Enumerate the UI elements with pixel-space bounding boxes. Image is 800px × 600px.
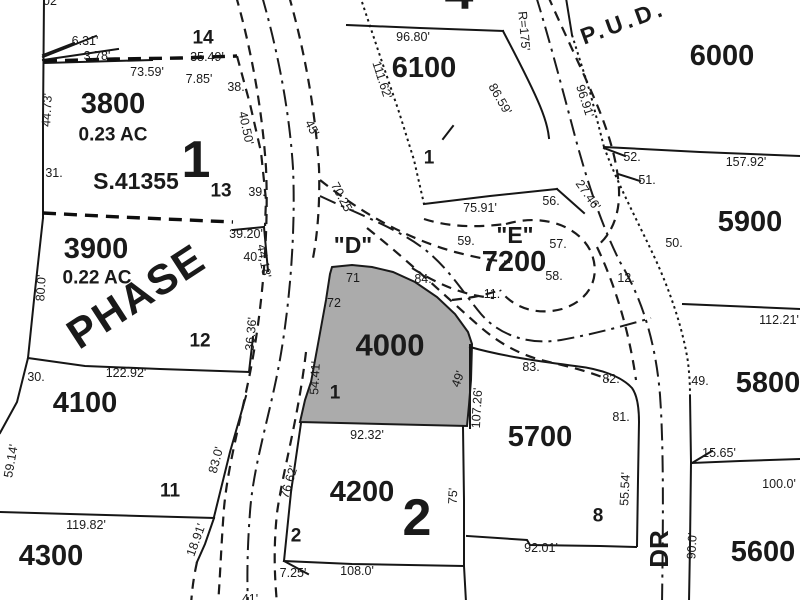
boundary-west-4100 <box>0 358 28 433</box>
parcel-number-5900: 5900 <box>718 206 783 238</box>
dimension-35-49: 35.49' <box>190 50 224 64</box>
dimension-7-85: 7.85' <box>186 72 213 86</box>
parcel-number-4000: 4000 <box>356 328 425 363</box>
corner-number-84: 84. <box>414 272 431 286</box>
dimension-18-91: 18.91' <box>184 522 209 558</box>
text-label-dr: DR <box>644 530 674 568</box>
parcel-number-5800: 5800 <box>736 367 800 399</box>
boundary-east-5700 <box>637 422 639 546</box>
dimension-r-175: R=175' <box>515 11 532 52</box>
dimension-59-14: 59.14' <box>1 443 21 479</box>
dimension-76-62: 76.62' <box>277 464 300 500</box>
parcel-number-5700: 5700 <box>508 421 573 453</box>
dimension-70-25: 70.25' <box>328 180 356 216</box>
road-a-centerline <box>247 0 293 600</box>
block-number-1: 1 <box>182 131 211 189</box>
dimension-73-59: 73.59' <box>130 65 164 79</box>
corner-number-82: 82. <box>602 372 619 386</box>
parcel-number-7200: 7200 <box>482 246 547 278</box>
road-edge-4300 <box>191 562 197 600</box>
parcel-number-5600: 5600 <box>731 536 796 568</box>
lot-number-12: 12 <box>189 331 210 352</box>
leader-51 <box>618 174 640 181</box>
block-number-2: 2 <box>403 489 432 547</box>
corner-number-31: 31. <box>45 166 62 180</box>
dimension-7-25: 7.25' <box>280 566 307 580</box>
corner-number-12: 12. <box>617 271 634 285</box>
lot-number-2: 2 <box>291 526 302 547</box>
boundary-east-4200 <box>463 427 466 600</box>
corner-number-71: 71 <box>346 271 360 285</box>
parcel-number-6100: 6100 <box>392 52 457 84</box>
dimension-107-26: 107.26' <box>469 387 485 428</box>
parcel-number-4200: 4200 <box>330 476 395 508</box>
corner-number-39: 39. <box>248 185 265 199</box>
dimension-86-59: 86.59' <box>486 81 515 117</box>
corner-number-30: 30. <box>27 370 44 384</box>
text-label-s-41355: S.41355 <box>93 168 179 194</box>
dimension-112-21: 112.21' <box>759 313 799 327</box>
dimension-90-0: 90.0' <box>684 532 699 559</box>
parcel-number-4300: 4300 <box>19 540 84 572</box>
dimension-45: 45' <box>302 118 322 139</box>
text-label-e: "E" <box>496 222 533 248</box>
boundary-5800-5900 <box>683 304 800 309</box>
dimension-96-80: 96.80' <box>396 30 430 44</box>
corner-number-50: 50. <box>665 236 682 250</box>
corner-number-56: 56. <box>542 194 559 208</box>
dimension-54-41: 54.41' <box>307 361 323 395</box>
boundary-dr-east <box>689 396 691 600</box>
tick-6100-lot1 <box>443 126 453 139</box>
corner-number-83: 83. <box>522 360 539 374</box>
dimension-157-92: 157.92' <box>726 155 767 169</box>
dr-west-edge <box>597 247 636 380</box>
block-number-4: 4 <box>445 0 474 21</box>
dimension-55-54: 55.54' <box>617 472 633 506</box>
corner-number-58: 58. <box>545 269 562 283</box>
dimension-92-01: 92.01' <box>524 541 558 555</box>
parcel-number-3800: 3800 <box>81 88 146 120</box>
leader-line-4 <box>43 43 74 55</box>
dimension-75-91: 75.91' <box>463 201 497 215</box>
lot-number-14: 14 <box>192 28 214 49</box>
corner-number-81: 81. <box>612 410 629 424</box>
dimension-39-20: 39.20' <box>229 227 263 241</box>
dimension-119-82: 119.82' <box>66 518 106 532</box>
dimension-15-65: 15.65' <box>702 446 736 460</box>
lot-number-8: 8 <box>593 506 604 527</box>
dimension-02: 02 <box>43 0 57 8</box>
plat-map-canvas: 3800390041004300400042006100720060005900… <box>0 0 800 600</box>
dimension-36-36: 36.36' <box>243 317 260 352</box>
plat-map: 3800390041004300400042006100720060005900… <box>0 0 800 600</box>
corner-number-49: 49. <box>691 374 708 388</box>
dimension-75: 75' <box>446 487 461 504</box>
dimension-92-32: 92.32' <box>350 428 384 442</box>
dimension-44-73: 44.73' <box>39 93 55 127</box>
area-label-0-23-ac: 0.23 AC <box>79 125 148 146</box>
corner-number-59: 59. <box>457 234 474 248</box>
dimension-41: 41' <box>242 592 258 600</box>
dimension-96-91: 96.91' <box>573 83 597 119</box>
text-label-d: "D" <box>334 232 372 258</box>
corner-number-11: 11. <box>484 287 500 301</box>
dimension-3-78: 3.78' <box>84 49 111 63</box>
lot-number-11: 11 <box>160 481 181 502</box>
parcel-number-6000: 6000 <box>690 40 755 72</box>
corner-number-38: 38. <box>227 80 244 94</box>
parcel-number-3900: 3900 <box>64 233 129 265</box>
boundary-south-4100 <box>0 512 214 518</box>
dimension-80-0: 80.0' <box>33 274 48 301</box>
lot-number-13: 13 <box>210 181 231 202</box>
corner-number-51: 51. <box>638 173 655 187</box>
culdesac-approach-upper <box>424 219 506 226</box>
text-label-p-u-d: P.U.D. <box>577 0 669 49</box>
corner-number-72: 72 <box>327 296 341 310</box>
dimension-122-92: 122.92' <box>106 366 147 380</box>
dimension-6-31: 6.31' <box>72 34 99 48</box>
boundary-96-91-top <box>566 0 572 35</box>
phase-boundary-south <box>43 213 233 222</box>
corner-number-40: 40. <box>243 250 260 264</box>
dimension-40-50: 40.50' <box>236 110 257 146</box>
corner-number-52: 52. <box>623 150 640 164</box>
parcel-number-4100: 4100 <box>53 387 118 419</box>
dimension-100-0: 100.0' <box>762 477 796 491</box>
dimension-83-0: 83.0' <box>206 445 226 474</box>
lot-number-1: 1 <box>424 148 435 169</box>
corner-number-57: 57. <box>549 237 566 251</box>
lot-number-1: 1 <box>330 383 341 404</box>
dimension-108-0: 108.0' <box>340 564 374 578</box>
